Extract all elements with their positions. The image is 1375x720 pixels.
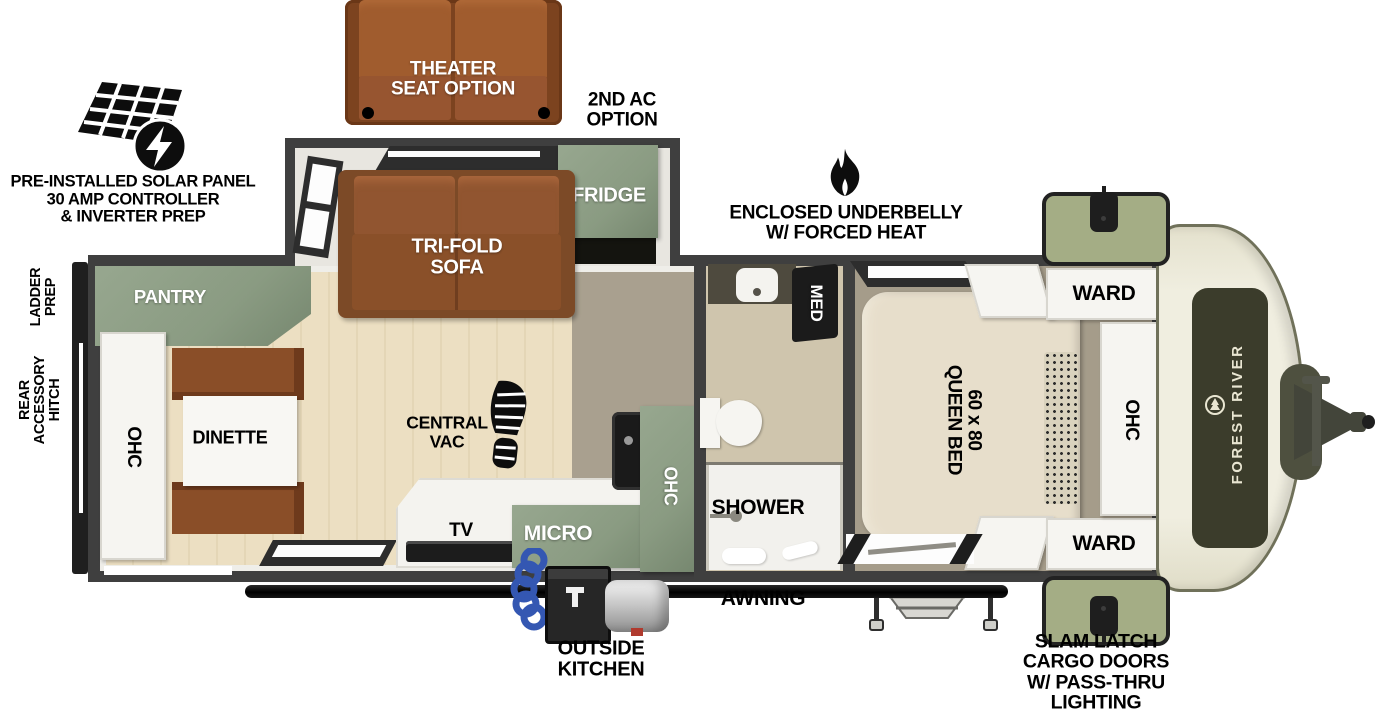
- tv: [406, 541, 516, 562]
- ohc-bedroom-label: OHC: [1121, 399, 1141, 440]
- pantry-label: PANTRY: [134, 287, 206, 307]
- solar-panel-icon: [72, 78, 194, 176]
- awning-label: AWNING: [721, 588, 806, 610]
- outside-kitchen-tank: [605, 580, 669, 632]
- dinette-bench-top: [172, 348, 304, 400]
- second-ac-callout: 2ND AC OPTION: [586, 91, 657, 132]
- latch-icon: [1090, 192, 1118, 232]
- rear-hitch-callout: REAR ACCESSORY HITCH: [18, 356, 64, 445]
- seat-foot-right: [538, 107, 550, 119]
- bed-headboard: [1044, 352, 1078, 504]
- fridge-label: FRIDGE: [572, 185, 646, 206]
- shower-label: SHOWER: [712, 497, 805, 519]
- tongue-hitch: [1272, 352, 1375, 492]
- dinette-window: [259, 540, 397, 566]
- rear-compartment-door: [104, 566, 232, 575]
- micro-label: MICRO: [524, 523, 593, 545]
- forest-river-logo-icon: [1204, 394, 1226, 416]
- seat-foot-left: [362, 107, 374, 119]
- ladder-prep-callout: LADDER PREP: [29, 268, 59, 327]
- tv-label: TV: [449, 521, 473, 541]
- bath-sink: [736, 268, 778, 302]
- sofa-label: TRI-FOLD SOFA: [412, 237, 503, 280]
- slam-latch-callout: SLAM LATCH CARGO DOORS W/ PASS-THRU LIGH…: [1023, 631, 1169, 712]
- ward-bottom-label: WARD: [1073, 533, 1136, 555]
- floorplan-canvas: PRE-INSTALLED SOLAR PANEL 30 AMP CONTROL…: [0, 0, 1375, 720]
- outside-kitchen-unit: [545, 566, 611, 644]
- faucet-icon: [624, 436, 633, 445]
- ladder-prep-marker: [79, 343, 83, 513]
- dinette-label: DINETTE: [193, 428, 268, 447]
- bath-right-wall: [843, 255, 855, 582]
- ward-top-label: WARD: [1073, 283, 1136, 305]
- flame-icon: [824, 148, 866, 202]
- dinette-bench-bottom: [172, 482, 304, 534]
- ohc-rear-label: OHC: [123, 426, 143, 467]
- med-label: MED: [807, 285, 825, 322]
- brand-label: FOREST RIVER: [1230, 344, 1246, 485]
- cargo-door-top: [1042, 192, 1170, 266]
- queen-bed-label: 60 x 80 QUEEN BED: [943, 365, 984, 475]
- nightstand-top: [964, 264, 1053, 318]
- ohc-kitchen-label: OHC: [660, 466, 679, 505]
- nightstand-bottom: [964, 516, 1053, 570]
- entry-door: [846, 534, 974, 564]
- central-vac-label: CENTRAL VAC: [406, 413, 488, 450]
- outside-kitchen-callout: OUTSIDE KITCHEN: [558, 639, 645, 682]
- solar-callout-text: PRE-INSTALLED SOLAR PANEL 30 AMP CONTROL…: [11, 174, 256, 227]
- theater-seat-label: THEATER SEAT OPTION: [391, 60, 515, 101]
- underbelly-callout: ENCLOSED UNDERBELLY W/ FORCED HEAT: [729, 204, 962, 245]
